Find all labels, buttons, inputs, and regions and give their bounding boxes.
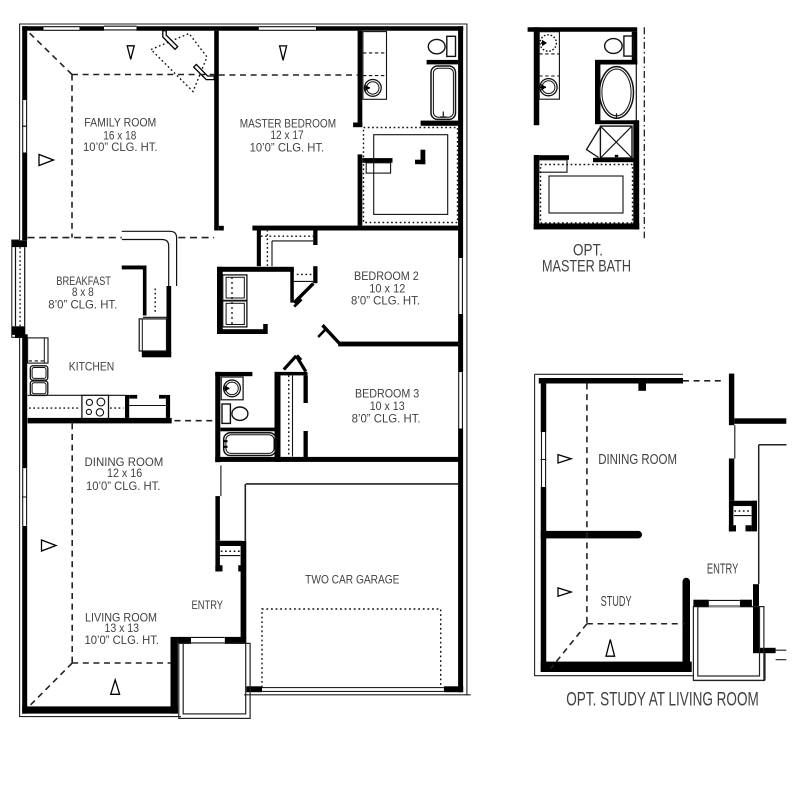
svg-text:OPT. STUDY AT LIVING ROOM: OPT. STUDY AT LIVING ROOM (566, 690, 759, 711)
svg-text:10’0” CLG. HT.: 10’0” CLG. HT. (83, 140, 158, 154)
svg-text:STUDY: STUDY (601, 593, 632, 610)
svg-text:KITCHEN: KITCHEN (69, 360, 114, 374)
svg-text:ENTRY: ENTRY (707, 560, 739, 577)
svg-text:8’0” CLG. HT.: 8’0” CLG. HT. (48, 298, 117, 312)
svg-text:8’0” CLG. HT.: 8’0” CLG. HT. (352, 411, 421, 425)
svg-text:DINING ROOM: DINING ROOM (598, 451, 677, 468)
svg-text:10’0” CLG. HT.: 10’0” CLG. HT. (85, 633, 160, 647)
svg-text:MASTER BATH: MASTER BATH (542, 258, 631, 276)
svg-text:TWO CAR GARAGE: TWO CAR GARAGE (305, 573, 399, 587)
svg-text:10’0” CLG. HT.: 10’0” CLG. HT. (250, 140, 325, 154)
svg-text:10’0” CLG. HT.: 10’0” CLG. HT. (86, 479, 161, 493)
svg-text:8’0” CLG. HT.: 8’0” CLG. HT. (351, 294, 420, 308)
svg-text:ENTRY: ENTRY (192, 598, 224, 612)
